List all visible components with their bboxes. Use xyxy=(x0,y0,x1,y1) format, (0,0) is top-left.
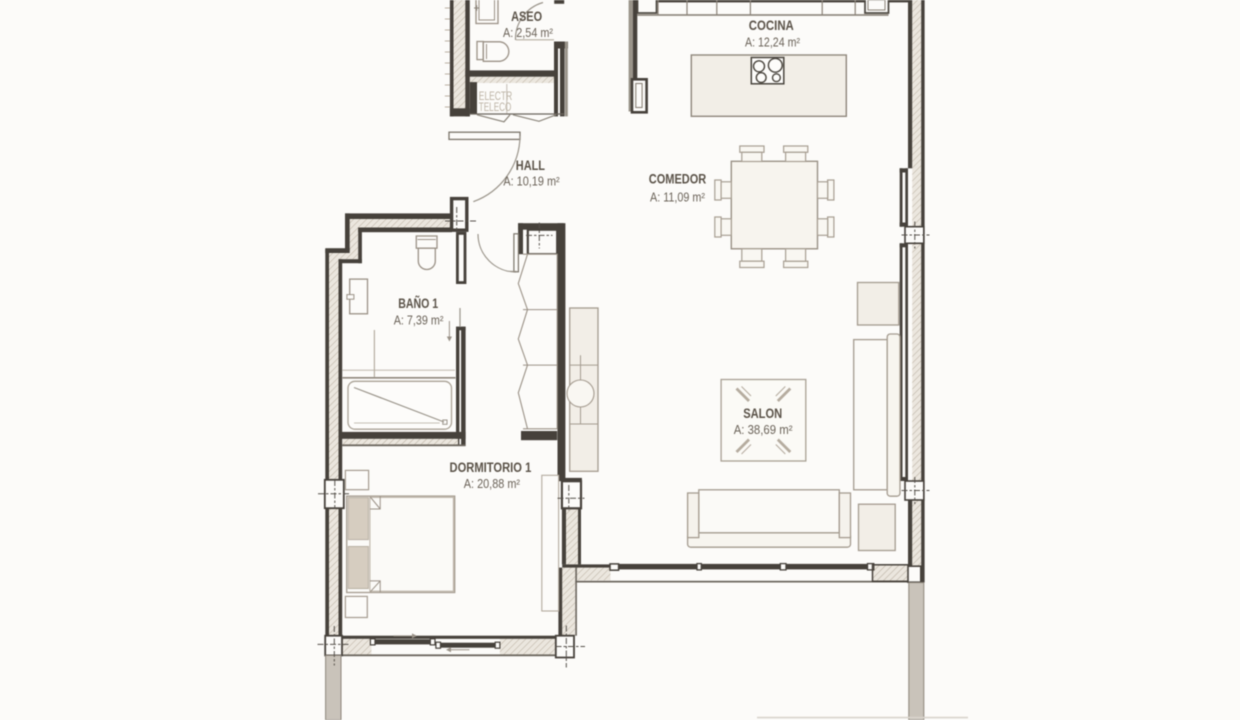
svg-text:HALL: HALL xyxy=(516,158,545,173)
svg-text:BAÑO 1: BAÑO 1 xyxy=(398,296,438,311)
svg-text:A: 2,54 m²: A: 2,54 m² xyxy=(503,25,554,40)
svg-text:DORMITORIO 1: DORMITORIO 1 xyxy=(450,460,532,475)
svg-text:A: 7,39 m²: A: 7,39 m² xyxy=(394,313,444,328)
svg-text:TELECO: TELECO xyxy=(479,102,512,114)
svg-text:COCINA: COCINA xyxy=(749,18,794,33)
svg-text:ASEO: ASEO xyxy=(511,9,542,24)
svg-text:A: 12,24 m²: A: 12,24 m² xyxy=(745,34,801,49)
svg-text:A: 10,19 m²: A: 10,19 m² xyxy=(503,173,560,188)
svg-text:A: 20,88 m²: A: 20,88 m² xyxy=(464,476,521,491)
svg-text:SALON: SALON xyxy=(743,406,782,421)
svg-text:A: 38,69 m²: A: 38,69 m² xyxy=(734,422,793,437)
svg-text:COMEDOR: COMEDOR xyxy=(649,172,707,187)
svg-text:A: 11,09 m²: A: 11,09 m² xyxy=(650,189,706,204)
